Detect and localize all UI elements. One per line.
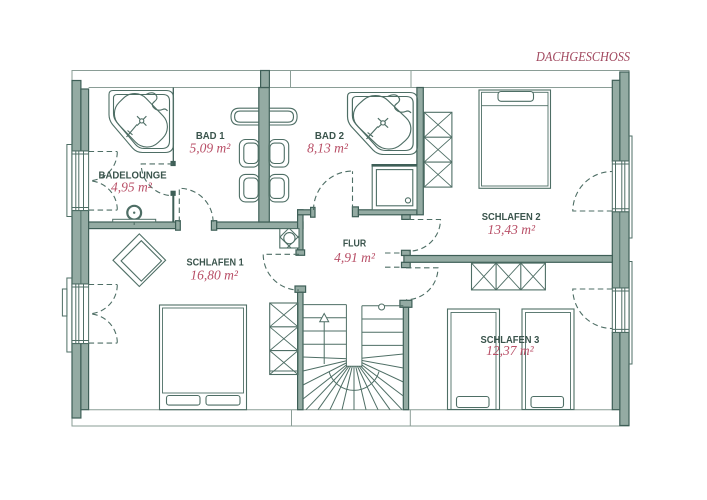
svg-text:13,43 m²: 13,43 m² [488, 222, 536, 237]
svg-text:12,37 m²: 12,37 m² [486, 343, 534, 358]
svg-text:DACHGESCHOSS: DACHGESCHOSS [535, 49, 630, 64]
svg-text:FLUR: FLUR [343, 239, 366, 250]
svg-text:5,09 m²: 5,09 m² [190, 141, 232, 156]
svg-text:4,95 m²: 4,95 m² [111, 180, 153, 195]
svg-text:16,80 m²: 16,80 m² [190, 267, 238, 282]
svg-text:8,13 m²: 8,13 m² [307, 141, 349, 156]
svg-text:4,91 m²: 4,91 m² [334, 250, 376, 265]
